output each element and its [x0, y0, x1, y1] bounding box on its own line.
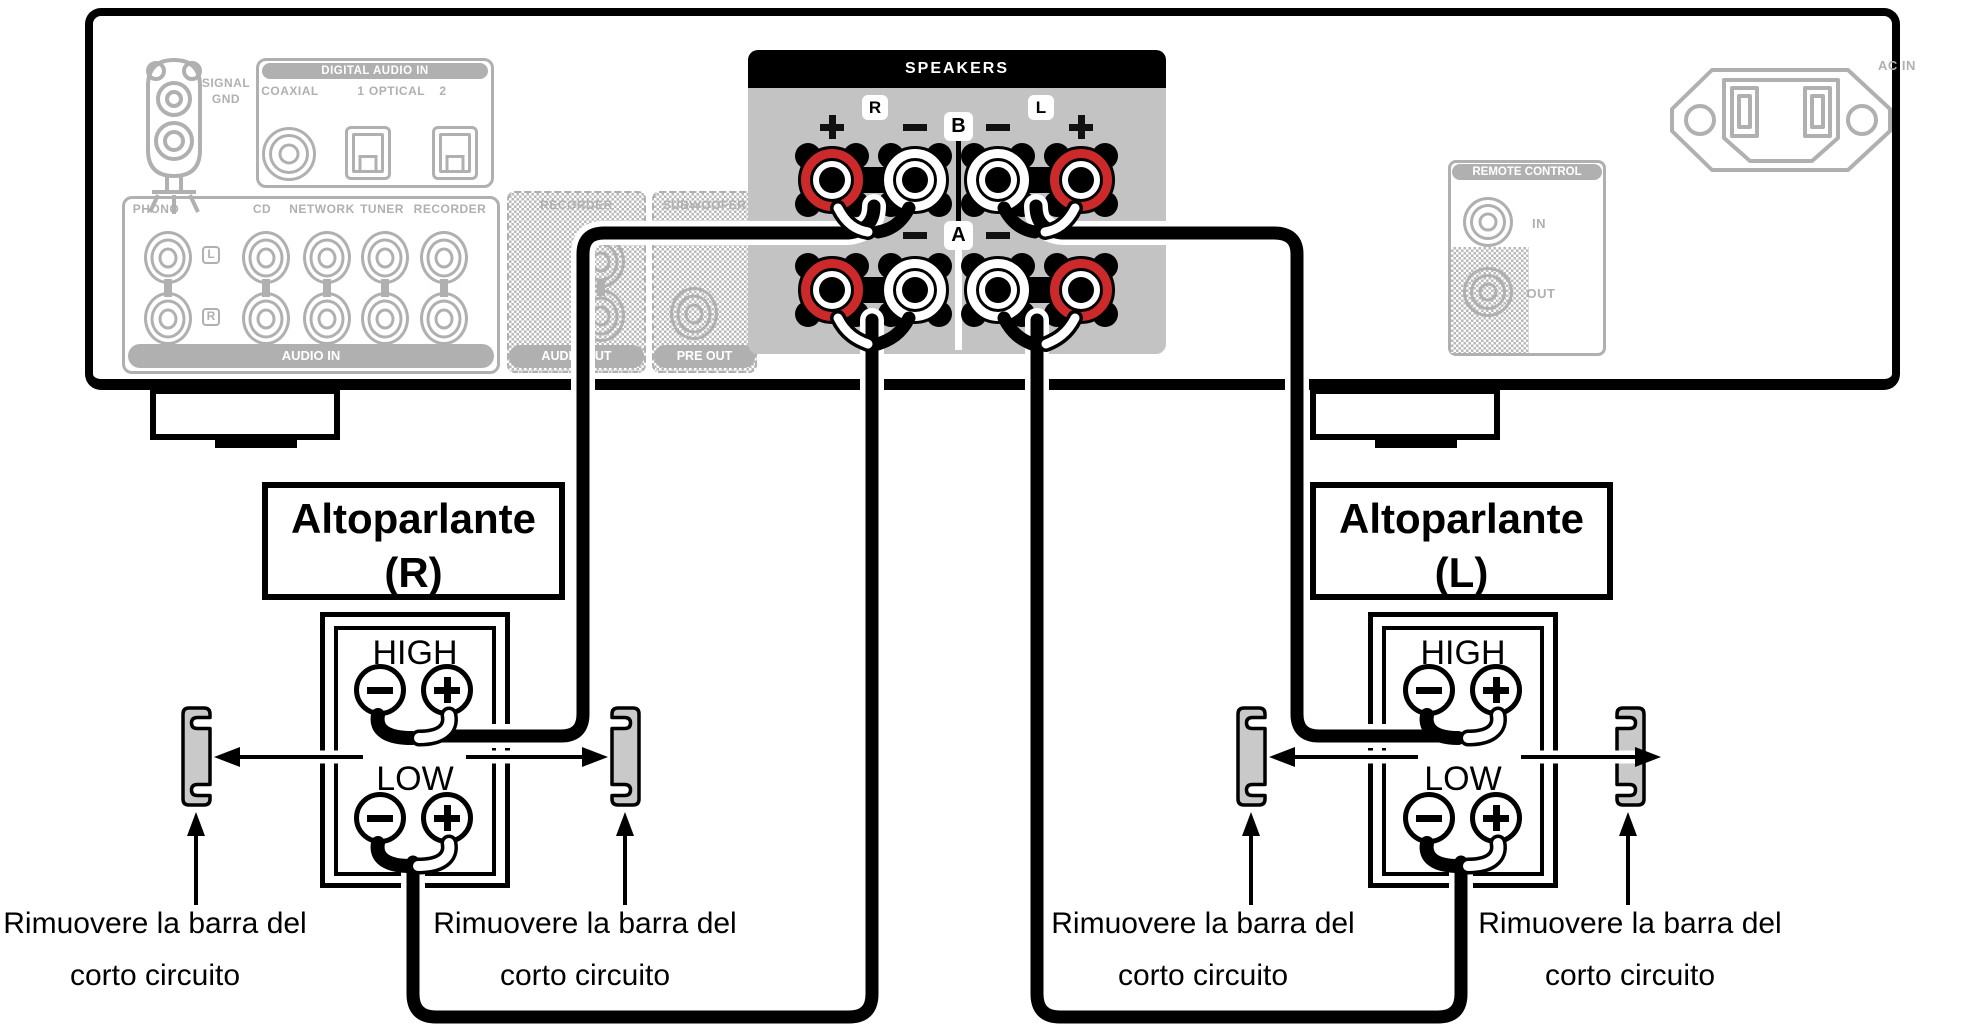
- post-b-r-minus: [881, 146, 949, 214]
- cd-jack-r: [242, 292, 290, 345]
- tuner-label: TUNER: [354, 202, 410, 216]
- remote-out-label: OUT: [1522, 286, 1560, 301]
- amp-foot-left: [150, 388, 340, 440]
- digital-audio-in-title: DIGITAL AUDIO IN: [262, 63, 488, 79]
- minus-icon: [984, 221, 1012, 249]
- speaker-r-high-label: HIGH: [334, 634, 496, 673]
- recorder-jack-l: [420, 231, 468, 284]
- speakers-panel-title: SPEAKERS: [748, 50, 1166, 88]
- speaker-l-low-plus: [1470, 792, 1522, 844]
- post-a-r-minus: [881, 256, 949, 324]
- minus-icon: [901, 221, 929, 249]
- pre-out-band: PRE OUT: [654, 345, 755, 368]
- caption-remove-bar-4: Rimuovere la barra delcorto circuito: [1475, 898, 1785, 1002]
- arrow-left-icon: [1269, 747, 1295, 767]
- post-b-r-plus: [798, 146, 866, 214]
- speakers-r-box: R: [862, 95, 888, 120]
- amp-foot-right: [1310, 388, 1500, 440]
- post-a-l-plus: [1047, 256, 1115, 324]
- post-a-l-minus: [964, 256, 1032, 324]
- audio-in-band: AUDIO IN: [128, 344, 494, 368]
- optical-label: OPTICAL: [367, 84, 427, 98]
- ac-in-label: AC IN: [1872, 58, 1922, 73]
- recorder-out-jack-r: [577, 289, 625, 342]
- speaker-r-titlebox: Altoparlante (R): [262, 482, 565, 600]
- arrow-left-icon: [214, 747, 240, 767]
- short-circuit-bar: [612, 708, 639, 805]
- speaker-l-channel: (L): [1316, 546, 1607, 600]
- speaker-r-high-plus: [421, 664, 473, 716]
- network-label: NETWORK: [288, 202, 356, 216]
- speaker-l-name: Altoparlante: [1316, 492, 1607, 546]
- speaker-r-low-plus: [421, 792, 473, 844]
- speaker-l-high-plus: [1470, 664, 1522, 716]
- recorder-out-label: RECORDER: [509, 198, 644, 212]
- speaker-r-low-label: LOW: [334, 760, 496, 799]
- short-circuit-bar: [1238, 708, 1265, 805]
- speakers-a-box: A: [944, 221, 973, 250]
- caption-remove-bar-2: Rimuovere la barra delcorto circuito: [430, 898, 740, 1002]
- amp-foot-right-pad: [1375, 436, 1457, 448]
- short-circuit-bar: [183, 708, 210, 805]
- speaker-leads: [378, 715, 1499, 866]
- caption-remove-bar-1: Rimuovere la barra delcorto circuito: [0, 898, 310, 1002]
- subwoofer-label: SUBWOOFER: [652, 198, 757, 212]
- plus-icon: [1067, 113, 1095, 141]
- speaker-r-channel: (R): [268, 546, 559, 600]
- network-jack-l: [303, 231, 351, 284]
- signal-gnd-label-line2: GND: [196, 92, 256, 106]
- minus-icon: [901, 113, 929, 141]
- post-b-l-plus: [1047, 146, 1115, 214]
- recorder-jack-r: [420, 292, 468, 345]
- recorder-in-label: RECORDER: [412, 202, 488, 216]
- arrow-right-icon: [1635, 747, 1661, 767]
- subwoofer-jack: [670, 287, 718, 340]
- coaxial-label: COAXIAL: [260, 84, 320, 98]
- speaker-r-name: Altoparlante: [268, 492, 559, 546]
- remote-in-jack: [1463, 197, 1513, 247]
- arrow-up-icon: [1619, 812, 1637, 836]
- speaker-l-titlebox: Altoparlante (L): [1310, 482, 1613, 600]
- tuner-jack-r: [361, 292, 409, 345]
- short-circuit-bar: [1617, 708, 1644, 805]
- speaker-l-high-minus: [1403, 664, 1455, 716]
- arrow-right-icon: [582, 747, 608, 767]
- arrow-up-icon: [616, 812, 634, 836]
- minus-icon: [984, 113, 1012, 141]
- speaker-r-low-minus: [354, 792, 406, 844]
- tuner-jack-l: [361, 231, 409, 284]
- speaker-l-high-label: HIGH: [1382, 634, 1544, 673]
- plus-icon: [818, 113, 846, 141]
- optical-1-label: 1: [354, 84, 368, 98]
- post-b-l-minus: [964, 146, 1032, 214]
- remote-out-jack: [1463, 267, 1513, 317]
- recorder-out-jack-l: [577, 235, 625, 288]
- phono-jack-r: [144, 292, 192, 345]
- cd-jack-l: [242, 231, 290, 284]
- coaxial-jack: [262, 127, 316, 181]
- channel-l-box: L: [202, 246, 220, 264]
- amp-foot-left-pad: [215, 436, 297, 448]
- cd-label: CD: [247, 202, 277, 216]
- remote-in-label: IN: [1524, 216, 1554, 231]
- remote-control-title: REMOTE CONTROL: [1452, 164, 1602, 180]
- speakers-b-box: B: [944, 112, 973, 141]
- speaker-connection-diagram: SIGNAL GND DIGITAL AUDIO IN COAXIAL 1 OP…: [0, 0, 1962, 1032]
- post-a-r-plus: [798, 256, 866, 324]
- optical-2-label: 2: [436, 84, 450, 98]
- phono-label: PHONO: [124, 202, 188, 216]
- channel-r-box: R: [202, 308, 220, 326]
- speaker-r-high-minus: [354, 664, 406, 716]
- speaker-l-low-label: LOW: [1382, 760, 1544, 799]
- arrow-up-icon: [187, 812, 205, 836]
- phono-jack-l: [144, 231, 192, 284]
- arrow-up-icon: [1242, 812, 1260, 836]
- audio-out-band: AUDIO OUT: [509, 345, 644, 368]
- optical-jack-1: [345, 126, 391, 180]
- caption-remove-bar-3: Rimuovere la barra delcorto circuito: [1048, 898, 1358, 1002]
- speaker-l-low-minus: [1403, 792, 1455, 844]
- optical-jack-2: [432, 126, 478, 180]
- network-jack-r: [303, 292, 351, 345]
- speakers-l-box: L: [1028, 95, 1054, 120]
- signal-gnd-label-line1: SIGNAL: [196, 76, 256, 90]
